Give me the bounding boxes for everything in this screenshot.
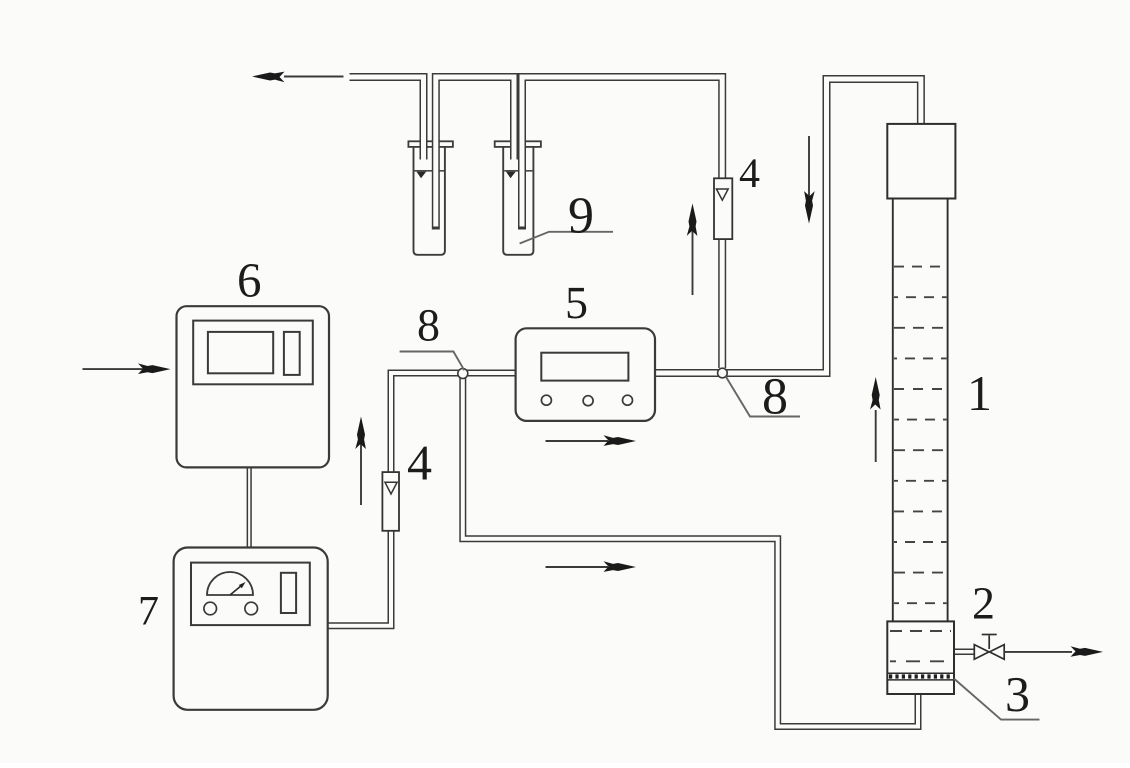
svg-text:5: 5: [565, 277, 588, 328]
svg-text:4: 4: [407, 435, 432, 491]
svg-text:1: 1: [967, 365, 992, 421]
svg-text:3: 3: [1005, 666, 1030, 722]
svg-text:6: 6: [237, 252, 262, 307]
svg-text:8: 8: [417, 299, 440, 350]
svg-text:2: 2: [972, 578, 995, 629]
svg-text:7: 7: [138, 589, 159, 635]
svg-text:4: 4: [739, 151, 760, 197]
svg-text:9: 9: [568, 188, 594, 245]
svg-text:8: 8: [762, 368, 788, 425]
